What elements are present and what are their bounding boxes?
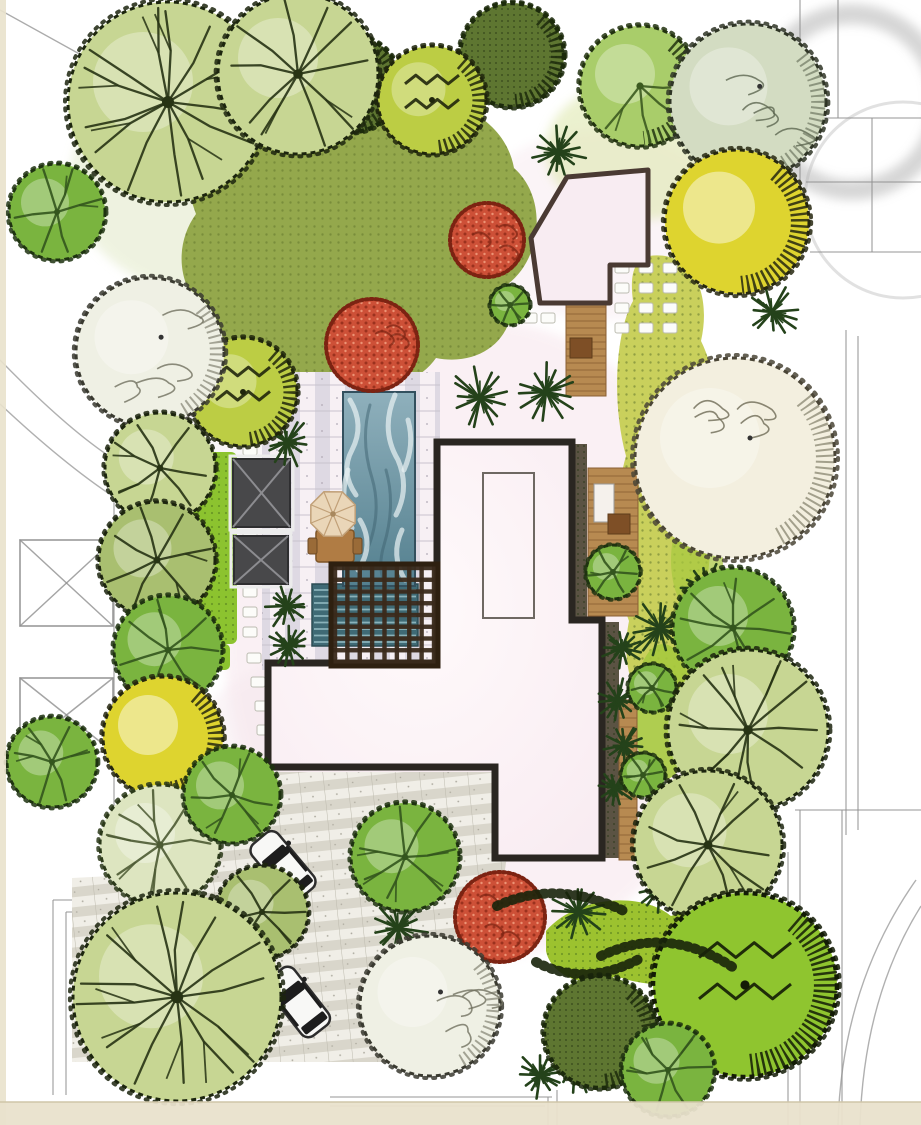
tree-scribYG xyxy=(376,44,487,155)
tree-mid xyxy=(349,801,460,912)
pergola-beam xyxy=(331,613,438,617)
tree-mid xyxy=(8,163,107,262)
stepping-stone xyxy=(663,283,677,293)
tree-mid xyxy=(627,663,676,712)
red-flowering-shrub xyxy=(326,299,418,391)
parasol-pole xyxy=(330,511,336,517)
planting-bed-texture xyxy=(574,444,587,620)
deck-table xyxy=(608,514,630,534)
tree-pale xyxy=(74,276,226,428)
pavilion-roof xyxy=(231,533,291,587)
cad-arc xyxy=(860,906,921,1125)
red-flowering-shrub xyxy=(450,203,524,277)
deck-table xyxy=(570,338,592,358)
stepping-stone xyxy=(243,607,257,617)
left-edge-band xyxy=(0,0,6,1125)
landscape-plan-page xyxy=(0,0,921,1125)
tree-mid xyxy=(585,544,641,600)
stepping-stone xyxy=(663,303,677,313)
pergola-beam xyxy=(331,625,438,629)
tree-mid xyxy=(489,284,530,325)
pavilion-roof xyxy=(230,456,293,530)
tree-sketch xyxy=(216,0,381,156)
stepping-stone xyxy=(615,303,629,313)
pergola-beam xyxy=(331,636,438,640)
fern-palm-plant xyxy=(752,287,798,332)
tree-pale xyxy=(358,934,503,1078)
pergola-beam xyxy=(331,578,438,582)
pergola xyxy=(331,564,438,666)
tree-mid xyxy=(6,716,99,809)
pergola-beam xyxy=(331,589,438,593)
stepping-stone xyxy=(251,677,265,687)
stepping-stone xyxy=(639,303,653,313)
stepping-stone xyxy=(615,283,629,293)
landscape-plan-drawing xyxy=(0,0,921,1125)
stepping-stone xyxy=(639,323,653,333)
stepping-stone xyxy=(663,323,677,333)
tree-yellow xyxy=(663,148,811,296)
stepping-stone xyxy=(639,283,653,293)
pergola-beam xyxy=(331,601,438,605)
stepping-stone xyxy=(541,313,555,323)
cad-arc xyxy=(0,404,114,497)
tree-cream xyxy=(632,355,838,561)
cad-arc xyxy=(838,880,916,1125)
stepping-stone xyxy=(243,627,257,637)
patio-chair xyxy=(353,538,362,554)
stepping-stone xyxy=(615,323,629,333)
patio-chair xyxy=(308,538,317,554)
stepping-stone xyxy=(247,653,261,663)
pergola-beam xyxy=(331,648,438,652)
bottom-edge-band xyxy=(0,1102,921,1125)
